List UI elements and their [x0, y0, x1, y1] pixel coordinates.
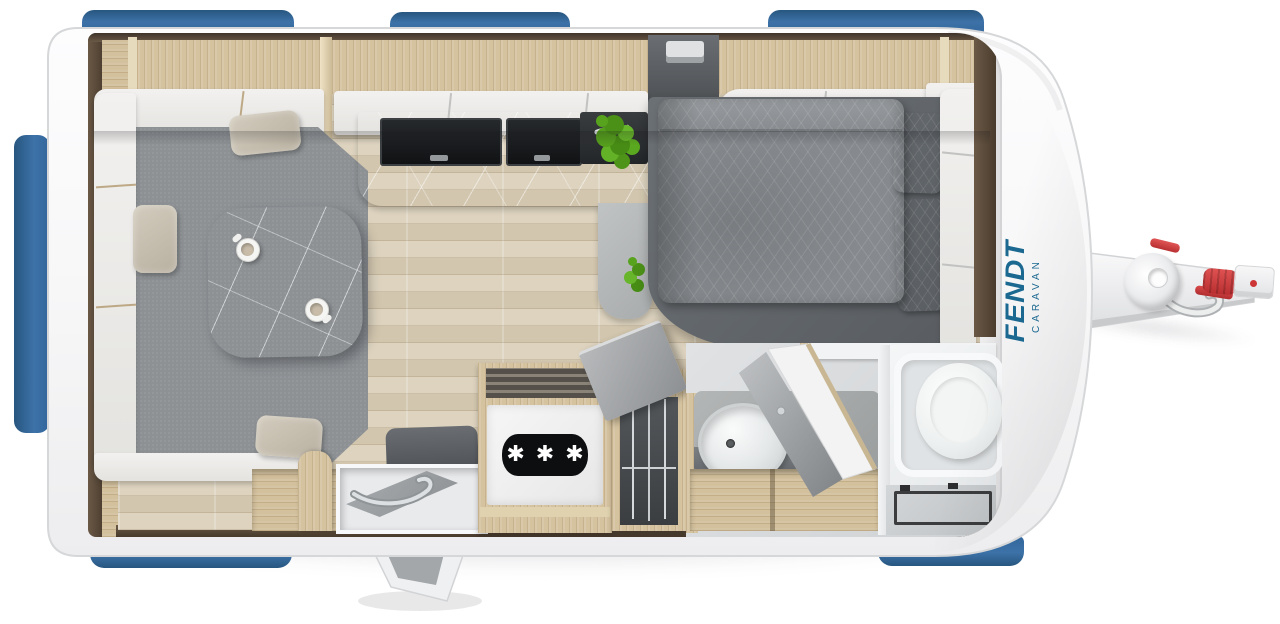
shower-drain-tab-2	[948, 483, 958, 489]
shelf-shadow	[94, 131, 990, 145]
hob-cover-handle	[430, 155, 448, 161]
storage-wire-shelf	[622, 467, 676, 469]
overhead-shelf-lounge	[137, 40, 322, 94]
brand-sub: CARAVAN	[1031, 237, 1042, 333]
bathroom-wall-trim	[800, 343, 808, 361]
storage-wire-3	[664, 399, 666, 519]
jockey-wheel-hole	[1148, 268, 1168, 288]
coupling-lock-dot	[1250, 280, 1257, 287]
interior: ✱ ✱ ✱	[88, 33, 1002, 537]
entry-bench-back	[385, 425, 478, 468]
storage-wire-2	[648, 399, 650, 521]
basin-drain	[726, 439, 735, 448]
plant-small	[628, 257, 637, 266]
freezer-badge: ✱ ✱ ✱	[502, 434, 588, 476]
dinette-table	[207, 206, 364, 359]
caravan-floorplan: ✱ ✱ ✱	[0, 0, 1280, 624]
bed-pillow-1	[893, 112, 946, 194]
coffee-cup-1	[236, 238, 260, 262]
sink-cover-handle	[534, 155, 550, 161]
entry-bench-arm	[298, 451, 332, 531]
front-bench	[940, 89, 976, 351]
overhead-shelf-corner	[102, 40, 130, 94]
brand-name: FENDT	[1000, 226, 1031, 343]
tv-bracket	[666, 41, 704, 63]
overhead-shelf-kitchen	[332, 40, 648, 94]
vanity-drawer	[690, 469, 880, 531]
kitchen-counter-column	[598, 203, 652, 319]
shelf-divider-1	[128, 37, 137, 97]
shower-tray-frame	[894, 491, 992, 525]
plant	[596, 115, 608, 127]
lounge-pillow-left	[133, 205, 177, 273]
dinette-backrest-left	[94, 93, 136, 465]
vanity-drawer-gap	[770, 469, 775, 531]
front-wall-trim	[974, 37, 996, 337]
brand-logo: FENDT CARAVAN	[1000, 230, 1052, 338]
toilet-lid-inner	[930, 377, 988, 443]
shower-drain-tab-1	[900, 485, 910, 491]
storage-wire-1	[632, 399, 634, 519]
fridge-base-strip	[480, 507, 610, 517]
overhead-shelf-bed	[719, 40, 940, 94]
